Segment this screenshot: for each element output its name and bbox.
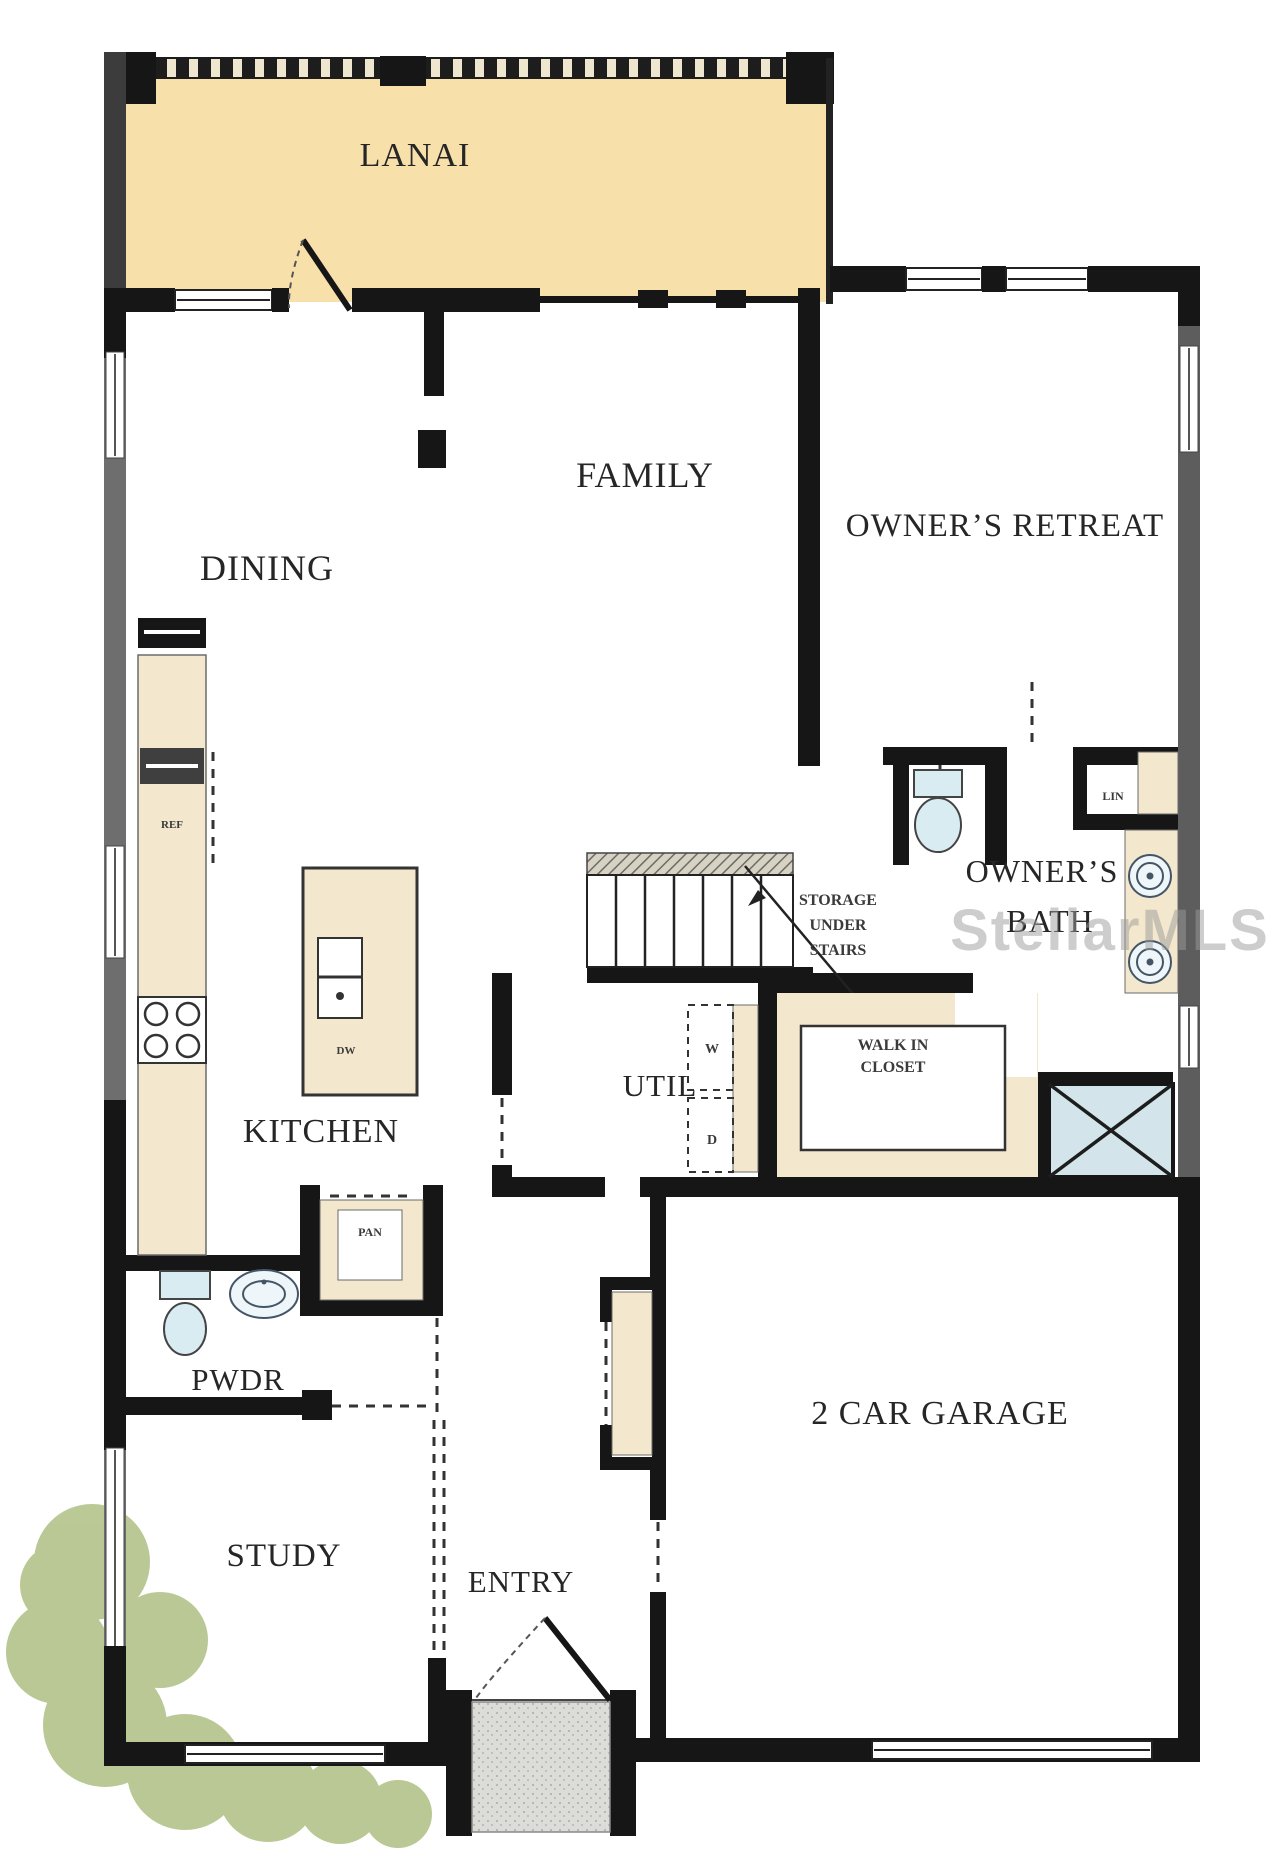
laundry-counter — [733, 1005, 758, 1172]
landscape-bush — [6, 1504, 432, 1848]
room-label-family: FAMILY — [576, 455, 714, 495]
pantry — [320, 1200, 423, 1300]
label-linen: LIN — [1102, 789, 1124, 803]
toilet-tank — [914, 770, 962, 797]
label-washer: W — [705, 1042, 719, 1057]
room-label-study: STUDY — [226, 1538, 341, 1574]
lanai-area — [104, 52, 834, 304]
front-door-leaf — [545, 1618, 610, 1700]
front-door-swing — [476, 1618, 545, 1698]
room-label-storage-1: STORAGE — [799, 892, 877, 909]
stellar-mls-watermark: StellarMLS — [950, 898, 1270, 963]
room-label-pwdr: PWDR — [191, 1362, 285, 1397]
room-label-garage: 2 CAR GARAGE — [811, 1395, 1069, 1432]
utility-area — [688, 1005, 758, 1172]
room-label-kitchen: KITCHEN — [243, 1113, 399, 1150]
room-label-util: UTIL — [623, 1068, 698, 1103]
porch — [472, 1702, 610, 1832]
lanai-left-wall — [104, 52, 126, 304]
label-dishwasher: DW — [337, 1045, 356, 1057]
label-pantry: PAN — [358, 1225, 382, 1239]
kitchen-counter — [138, 655, 206, 1255]
coat-closet-shelf — [612, 1292, 652, 1455]
sliding-door — [540, 296, 806, 303]
toilet-bowl — [164, 1303, 206, 1355]
floor-plan-page: LANAI FAMILY DINING OWNER’S RETREAT OWNE… — [0, 0, 1280, 1865]
walk-in-closet — [777, 993, 1038, 1177]
powder-room — [160, 1270, 298, 1355]
room-label-dining: DINING — [200, 548, 334, 588]
lanai-column — [380, 56, 426, 86]
room-label-walkin-2: CLOSET — [861, 1059, 926, 1076]
room-label-entry: ENTRY — [468, 1564, 575, 1599]
room-label-owners-bath-1: OWNER’S — [966, 853, 1119, 889]
toilet-bowl — [915, 798, 961, 852]
floor-plan-svg: LANAI FAMILY DINING OWNER’S RETREAT OWNE… — [0, 0, 1280, 1865]
kitchen-area — [138, 618, 417, 1255]
label-dryer: D — [707, 1133, 717, 1148]
entry-porch — [472, 1618, 610, 1832]
room-label-owners-retreat: OWNER’S RETREAT — [846, 508, 1164, 544]
room-label-storage-2: UNDER — [810, 917, 867, 934]
room-label-lanai: LANAI — [360, 137, 471, 174]
pedestal-sink — [230, 1270, 298, 1318]
toilet-tank — [160, 1271, 210, 1299]
room-label-walkin-1: WALK IN — [858, 1037, 929, 1054]
lanai-screen-wall — [112, 58, 830, 78]
stair-direction-arrow — [748, 890, 766, 906]
label-fridge: REF — [161, 819, 183, 831]
room-label-storage-3: STAIRS — [810, 942, 867, 959]
linen-shelf — [1138, 752, 1178, 814]
